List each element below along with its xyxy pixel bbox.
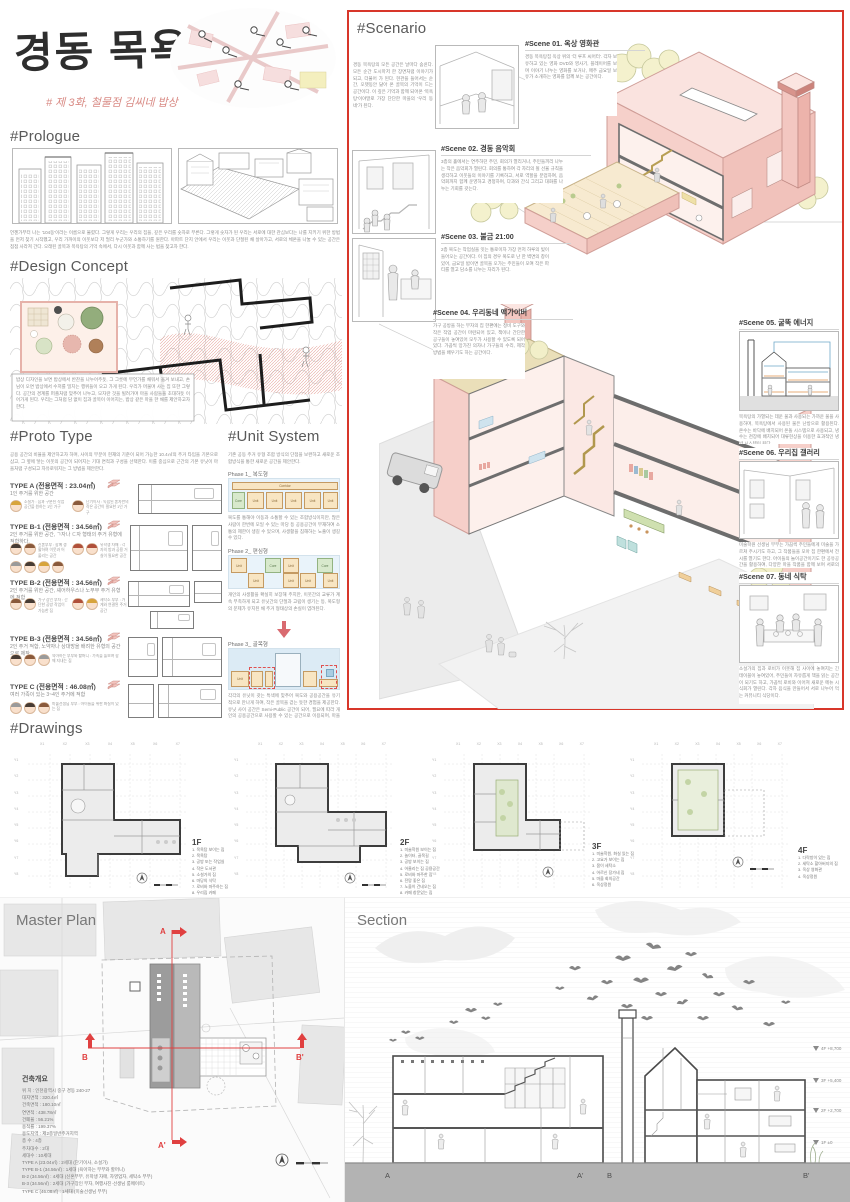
grid-label: Y1: [432, 758, 436, 762]
floor-plan-2f: X1X2X3X4X5X6X7 Y1Y2Y3Y4Y5Y6Y7Y8 2F 1. 미술…: [234, 742, 430, 900]
scene-04-text: 가구 공방을 하는 부자의 집 한편에는 정비 도구와 작은 작업 공간이 마련…: [433, 323, 525, 379]
phase3-text: 각각의 유닛이 갖는 특색에 맞추어 복도와 공용공간을 유기적으로 만나게 하…: [228, 693, 340, 719]
person-face-icon: [24, 543, 36, 555]
overview-line: 대지면적 : 320.4㎡: [22, 1094, 212, 1101]
chimney: [619, 1010, 636, 1163]
grid-label: X4: [716, 742, 720, 746]
svg-text:A: A: [385, 1171, 390, 1180]
scene-07-title: #Scene 07. 동네 식탁: [739, 572, 839, 584]
plan-svg: [242, 750, 397, 892]
unit-cell: Unit: [283, 558, 299, 573]
person-face-icon: [52, 561, 64, 573]
plan-svg: [440, 750, 595, 892]
grid-label: Y3: [14, 791, 18, 795]
overview-line: 층 수 : 4층: [22, 1137, 212, 1144]
person-face-icon: [10, 500, 22, 512]
ground-band: [345, 1163, 850, 1202]
laundry-machines: [617, 536, 637, 553]
floor-plan-1f: X1X2X3X4X5X6X7 Y1Y2Y3Y4Y5Y6Y7Y8 1F 1. 목욕…: [12, 742, 230, 900]
plan-label: 4F: [798, 846, 838, 855]
grid-label: Y7: [14, 856, 18, 860]
type-b1-person-2: 유학생 자매 : 각자의 방과 공용 거실이 필요한 공간: [72, 543, 128, 559]
person-face-icon: [38, 561, 50, 573]
person-face-icon: [38, 702, 50, 714]
grid-label: Y8: [14, 872, 18, 876]
overview-line: 건축면적 : 180.10㎡: [22, 1101, 212, 1108]
person-face-icon: [24, 598, 36, 610]
grid-label: X7: [176, 742, 180, 746]
scale-bar-icon: [750, 868, 774, 870]
svg-text:1F ±0: 1F ±0: [821, 1140, 833, 1145]
type-b1-person-1: 신혼부부 : 함께 생활하며 이웃과 어울리는 공간: [10, 543, 68, 559]
scene-07-text: 소설가의 집과 로비가 이웃해 집 사이에 놓여지는 긴 테이블이 놓여있어, …: [739, 666, 839, 704]
scene-05-text: 목욕탕의 가열되는 데운 물과 사용되는 가까운 물을 사용하며, 목욕탕에서 …: [739, 414, 839, 444]
type-b1-plan-2: [192, 525, 222, 571]
type-a-person-2: 단기이사 : 독립된 혼자만의 작은 공간이 필요한 1인 가구: [72, 500, 130, 516]
grid-label: X6: [559, 742, 563, 746]
section-b: [645, 1048, 823, 1163]
prologue-heading: #Prologue: [10, 128, 80, 145]
scenario-intro: 경동 목욕탕의 모든 공간은 날마다 숨쉰다. 모든 순간 도시마저 한 장면처…: [353, 62, 433, 148]
type-c-plan-2: [158, 684, 222, 718]
person-desc: 가구 장인 부자 : 간단한 공방 작업이 가능한 집: [38, 598, 68, 614]
plan-legend: 1. 목욕탕 보이는 집2. 목욕탕3. 공방 또는 작업실4. 작은 도서관5…: [192, 847, 228, 897]
building-overview: 건축개요 위 치 : 인천광역시 중구 경동 240-27대지면적 : 320.…: [22, 1074, 212, 1195]
grid-label: X7: [382, 742, 386, 746]
person-face-icon: [24, 654, 36, 666]
highlight-dashed-box: [249, 667, 275, 689]
grid-label: X3: [85, 742, 89, 746]
grid-label: Y8: [630, 872, 634, 876]
type-b2-person-1: 가구 장인 부자 : 간단한 공방 작업이 가능한 집: [10, 598, 68, 614]
bapsang-inset: [21, 302, 117, 372]
scenario-panel: #Scenario 경동 목욕탕의 모든 공간은 날마다 숨쉰다. 모든 순간 …: [347, 10, 844, 710]
grid-label: Y2: [630, 774, 634, 778]
type-b2-title: TYPE B-2 (전용면적 : 34.56㎡): [10, 577, 102, 587]
proto-type-intro: 공용 공간의 비율을 제안하고자 하며, 사이의 부분이 현재의 기준이 되어 …: [10, 452, 218, 476]
person-face-icon: [72, 543, 84, 555]
legend-item: 4. 옥상정원: [798, 874, 838, 880]
person-face-icon: [86, 543, 98, 555]
corridor-cell: Corridor: [232, 482, 338, 490]
grid-label: Y4: [630, 807, 634, 811]
phase1-diagram: Corridor Core Unit Unit Unit Unit Unit: [228, 478, 340, 512]
person-desc: 육아하는 부부와 할머니 : 가족을 돌보며 함께 지내는 집: [52, 654, 122, 665]
design-concept-text: 밥상 디자인을 보면 밥상에서 반찬을 나누어주듯, 그 그릇에 무언가를 채워…: [16, 377, 190, 418]
scene-04-title: #Scene 04. 우리동네 맥가이버: [433, 308, 573, 320]
scale-bar-icon: [362, 884, 386, 886]
svg-text:A': A': [577, 1171, 584, 1180]
stair-core: [564, 356, 614, 516]
unit-cell: Unit: [304, 492, 321, 509]
type-a-axon-icon: [106, 478, 122, 490]
type-b2-plan-3: [150, 611, 194, 629]
type-a-desc: 1인 주거를 위한 공간: [10, 491, 125, 498]
grid-y-labels: Y1Y2Y3Y4Y5Y6Y7Y8: [630, 758, 634, 876]
green-counter: [624, 509, 664, 533]
person-face-icon: [86, 598, 98, 610]
highlight-dashed-box: [321, 665, 337, 689]
site-map-illustration: [168, 6, 338, 110]
grid-label: X6: [153, 742, 157, 746]
type-c-axon-icon: [106, 679, 122, 691]
type-a-plan: [138, 484, 222, 514]
svg-text:4F +8,700: 4F +8,700: [821, 1046, 842, 1051]
type-b3-plan-2: [162, 637, 222, 677]
type-b2-axon-icon: [106, 575, 122, 587]
grid-label: X6: [361, 742, 365, 746]
unit-cell: Unit: [248, 573, 264, 588]
person-face-icon: [24, 702, 36, 714]
legend-item: 3. 공방 또는 작업실: [192, 859, 228, 865]
left-tree: [349, 1102, 377, 1163]
prologue-image-apartments: [12, 148, 172, 224]
scene-03-title: #Scene 03. 불금 21:00: [441, 232, 571, 244]
building-overview-title: 건축개요: [22, 1074, 212, 1084]
scene-01-title: #Scene 01. 옥상 영화관: [525, 39, 645, 51]
grid-x-labels: X1X2X3X4X5X6X7: [456, 742, 584, 746]
master-plan-panel: A A' B B' Master Plan 건축개요 위 치 : 인천광역시 중…: [0, 897, 345, 1202]
grid-y-labels: Y1Y2Y3Y4Y5Y6Y7Y8: [432, 758, 436, 876]
scene-01-illustration: [435, 45, 519, 129]
design-concept-heading: #Design Concept: [10, 258, 128, 275]
person-desc: 유학생 자매 : 각자의 방과 공용 거실이 필요한 공간: [100, 543, 128, 559]
unit-cell: Unit: [323, 492, 338, 509]
grid-label: Y3: [432, 791, 436, 795]
svg-text:B: B: [82, 1053, 88, 1062]
grid-label: X4: [320, 742, 324, 746]
grid-label: Y6: [234, 839, 238, 843]
grid-label: X2: [63, 742, 67, 746]
level-markers: 4F +8,700 3F +5,400 2F +2,700 1F ±0: [813, 1046, 842, 1145]
overview-line: 용도지역 : 제2종일반주거지역: [22, 1130, 212, 1137]
unit-cell: Unit: [323, 573, 338, 588]
grid-label: X3: [299, 742, 303, 746]
scene-01-text: 경동 목욕탕집 옥상 위의 '더 루프 씨어터'. 각자 보유하고 있는 영화 …: [525, 54, 617, 116]
floor-plan-3f: X1X2X3X4X5X6X7 Y1Y2Y3Y4Y5Y6Y7Y8 3F 1. 미술…: [432, 742, 628, 900]
grid-label: X2: [279, 742, 283, 746]
building-overview-lines: 위 치 : 인천광역시 중구 경동 240-27대지면적 : 320.4㎡건축면…: [22, 1087, 212, 1195]
unit-system-heading: #Unit System: [228, 428, 320, 445]
grid-label: Y2: [432, 774, 436, 778]
type-c-title: TYPE C (전용면적 : 46.08㎡): [10, 681, 96, 691]
svg-text:B: B: [607, 1171, 612, 1180]
phase3-diagram: Unit: [228, 648, 340, 690]
phase-arrow-icon: [277, 621, 291, 638]
scale-bar-icon: [296, 1162, 328, 1164]
scene-03-illustration: [352, 238, 436, 322]
grid-label: X3: [497, 742, 501, 746]
north-arrow-icon: [345, 873, 355, 883]
north-arrow-icon: [543, 867, 553, 877]
type-b2-plan-1: [128, 581, 190, 607]
plan-legend: 1. 미술학원, 화실 있는 집2. 고요가 보이는 집3. 몸이 세탁소4. …: [592, 851, 634, 888]
grid-label: Y4: [14, 807, 18, 811]
scene-02-text: 3층의 홀에서는 연주하던 주민, 회의가 열리거나, 주민들끼리 나누는 작은…: [441, 159, 563, 203]
drawings-heading: #Drawings: [10, 720, 83, 737]
phase1-text: 복도를 통해야 이동과 소통할 수 있는 조합방식이지만, 많은 사람이 한번에…: [228, 515, 340, 543]
plan-svg: [638, 750, 793, 892]
scene-06-illustration: [739, 461, 839, 539]
grid-label: Y4: [234, 807, 238, 811]
svg-text:A: A: [160, 927, 166, 936]
grid-label: X5: [736, 742, 740, 746]
plants: [811, 1143, 824, 1163]
grid-label: Y5: [432, 823, 436, 827]
north-arrow-icon: [276, 1154, 288, 1166]
grid-label: X7: [778, 742, 782, 746]
proto-type-heading: #Proto Type: [10, 428, 93, 445]
page-subtitle: # 제 3화, 철물점 김씨네 밥상: [46, 94, 178, 110]
overview-line: 건폐율 : 56.21%: [22, 1116, 212, 1123]
overview-line: TYPE C (46.08㎡) : 1세대 (미술선생님 부부): [22, 1188, 212, 1195]
section-svg: 4F +8,700 3F +5,400 2F +2,700 1F ±0 A A'…: [345, 898, 850, 1202]
grid-label: Y7: [234, 856, 238, 860]
unit-cell: Unit: [283, 573, 299, 588]
site-map-svg: [168, 6, 338, 110]
type-b1-title: TYPE B-1 (전용면적 : 34.56㎡): [10, 521, 102, 531]
design-concept-drawing: 밥상 디자인을 보면 밥상에서 반찬을 나누어주듯, 그 그릇에 무언가를 채워…: [10, 278, 342, 424]
overview-line: TYPE B-1 (34.56㎡) : 1세대 (육아하는 부부와 할머니): [22, 1166, 212, 1173]
scene-06-text: 미술학원 선생님 부부는 가끔씩 주민들에게 미술을 가르쳐 주시기도 하고, …: [739, 542, 839, 568]
section-panel: 4F +8,700 3F +5,400 2F +2,700 1F ±0 A A'…: [345, 897, 850, 1202]
grid-label: Y6: [630, 839, 634, 843]
grid-label: Y2: [14, 774, 18, 778]
plan-label: 3F: [592, 842, 634, 851]
plan-svg: [22, 750, 192, 892]
person-face-icon: [10, 598, 22, 610]
grid-label: Y6: [14, 839, 18, 843]
presentation-board: 경동 목욕탕 # 제 3화, 철물점 김씨네 밥상 #Prologue: [0, 0, 850, 1202]
grid-label: Y8: [234, 872, 238, 876]
prologue-text: 언젠가부터 나는 '104동'이라는 이름으로 불렸다. 그렇게 우리는 우리의…: [10, 230, 340, 258]
person-face-icon: [38, 654, 50, 666]
unit-cell: Unit: [247, 492, 264, 509]
grid-label: Y3: [234, 791, 238, 795]
grid-y-labels: Y1Y2Y3Y4Y5Y6Y7Y8: [234, 758, 238, 876]
grid-label: X1: [40, 742, 44, 746]
grid-label: X3: [695, 742, 699, 746]
scene-05-energy-diagram: [739, 331, 839, 411]
grid-label: Y4: [432, 807, 436, 811]
grid-x-labels: X1X2X3X4X5X6X7: [40, 742, 180, 746]
person-desc: 소설가 : 집과 구분된 작업 공간을 원하는 1인 가구: [24, 500, 68, 511]
scene-02-title: #Scene 02. 경동 음악회: [441, 144, 591, 156]
phase3-label: Phase 3_ 골목형: [228, 640, 268, 648]
grid-label: Y7: [630, 856, 634, 860]
grid-label: X1: [456, 742, 460, 746]
grid-label: X7: [580, 742, 584, 746]
scene-02-illustration: [352, 150, 436, 234]
person-face-icon: [72, 500, 84, 512]
svg-text:B': B': [803, 1171, 810, 1180]
grid-label: X1: [654, 742, 658, 746]
person-face-icon: [10, 543, 22, 555]
type-b2-plan-2: [194, 581, 222, 603]
unit-cell: Unit: [231, 671, 249, 687]
prologue-image-rooftops: [178, 148, 338, 224]
type-c-person-1: 미술선생님 부부 : 아이들을 위한 화실이 있는 집: [10, 702, 122, 714]
grid-label: Y5: [630, 823, 634, 827]
grid-label: Y1: [14, 758, 18, 762]
grid-label: X4: [518, 742, 522, 746]
svg-text:2F +2,700: 2F +2,700: [821, 1108, 842, 1113]
grid-label: X4: [108, 742, 112, 746]
legend-item: 8. 우리집 카페: [192, 890, 228, 896]
master-plan-heading: Master Plan: [16, 912, 96, 929]
person-face-icon: [24, 561, 36, 573]
type-c-plan-1: [128, 684, 154, 718]
person-desc: 세탁소 부부 : 가게와 연결된 주거 공간: [100, 598, 128, 614]
grid-label: Y1: [630, 758, 634, 762]
floor-plan-4f: X1X2X3X4X5X6X7 Y1Y2Y3Y4Y5Y6Y7Y8 4F 1. 다락…: [630, 742, 848, 900]
clouds: [375, 901, 845, 1058]
grid-label: Y1: [234, 758, 238, 762]
grid-label: Y5: [14, 823, 18, 827]
core-cell: Core: [232, 492, 245, 509]
unit-cell: Unit: [285, 492, 302, 509]
site-building: [130, 964, 200, 1088]
grid-label: X5: [538, 742, 542, 746]
grid-label: Y8: [432, 872, 436, 876]
overview-line: TYPE A (23.04㎡) : 2세대 (단기이사, 소설가): [22, 1159, 212, 1166]
chimney: [778, 73, 814, 188]
phase2-text: 개인의 사생활을 확실히 보장해 주지만, 이웃간의 교류가 계속 부족하게 되…: [228, 592, 340, 618]
type-b2-person-2: 세탁소 부부 : 가게와 연결된 주거 공간: [72, 598, 128, 614]
section-heading: Section: [357, 912, 407, 929]
type-c-desc: 여러 가족이 있는 3~4인 주거에 적합: [10, 692, 125, 699]
type-b1-plan-1: [130, 525, 188, 571]
type-b3-title: TYPE B-3 (전용면적 : 34.56㎡): [10, 633, 102, 643]
overview-line: 용적률 : 199.37%: [22, 1123, 212, 1130]
legend-item: 6. 옥상정원: [592, 882, 634, 888]
grid-label: X2: [477, 742, 481, 746]
grid-label: Y2: [234, 774, 238, 778]
unit-system-intro: 기존 공동 주거 유형 조합 방식의 단점을 보완하고 새로운 조합방식을 통한…: [228, 452, 340, 468]
grid-label: X2: [675, 742, 679, 746]
core-cell: Core: [317, 558, 333, 573]
person-face-icon: [10, 654, 22, 666]
core-cell: Core: [265, 558, 281, 573]
scenario-heading: #Scenario: [357, 20, 426, 37]
rooftops-sketch: [179, 149, 337, 223]
type-a-title: TYPE A (전용면적 : 23.04㎡): [10, 480, 95, 490]
grid-label: X5: [340, 742, 344, 746]
grid-x-labels: X1X2X3X4X5X6X7: [654, 742, 782, 746]
person-desc: 미술선생님 부부 : 아이들을 위한 화실이 있는 집: [52, 702, 122, 713]
overview-line: 연면적 : 438.78㎡: [22, 1109, 212, 1116]
overview-line: B-2 (34.56㎡) : 4세대 (신혼부부, 유학생 자매, 자영업자, …: [22, 1173, 212, 1180]
grid-label: Y3: [630, 791, 634, 795]
unit-cell: Unit: [300, 573, 316, 588]
void-cell: [275, 653, 301, 687]
type-b3-axon-icon: [106, 631, 122, 643]
type-b1-axon-icon: [106, 519, 122, 531]
overview-line: 위 치 : 인천광역시 중구 경동 240-27: [22, 1087, 212, 1094]
person-face-icon: [72, 598, 84, 610]
scene-03-text: 2층 복도는 작업실을 잇는 통로이자 가장 먼저 하루의 빛이 들어오는 공간…: [441, 247, 549, 295]
grid-y-labels: Y1Y2Y3Y4Y5Y6Y7Y8: [14, 758, 18, 876]
north-arrow-icon: [733, 857, 743, 867]
person-face-icon: [10, 561, 22, 573]
apartments-sketch: [13, 149, 171, 223]
person-desc: 단기이사 : 독립된 혼자만의 작은 공간이 필요한 1인 가구: [86, 500, 130, 516]
section-a: [393, 1056, 603, 1171]
unit-cell: [303, 671, 317, 687]
overview-line: B-3 (34.56㎡) : 2세대 (가구장인 부자, 여행사진·선생님 룸메…: [22, 1180, 212, 1187]
unit-cell: Unit: [266, 492, 283, 509]
grid-label: X6: [757, 742, 761, 746]
north-arrow-icon: [137, 873, 147, 883]
unit-cell: Unit: [231, 558, 247, 573]
person-desc: 신혼부부 : 함께 생활하며 이웃과 어울리는 공간: [38, 543, 68, 559]
person-face-icon: [10, 702, 22, 714]
overview-line: 세대수 : 10세대: [22, 1152, 212, 1159]
plan-label: 1F: [192, 838, 228, 847]
grid-label: X1: [258, 742, 262, 746]
scene-07-illustration: [739, 585, 839, 663]
phase1-label: Phase 1_ 복도형: [228, 470, 268, 478]
grid-label: X5: [130, 742, 134, 746]
svg-text:B': B': [296, 1053, 304, 1062]
overview-line: 주차대수 : 2대: [22, 1145, 212, 1152]
grid-label: Y6: [432, 839, 436, 843]
phase2-diagram: Unit Core Unit Core Unit Unit Unit Unit: [228, 555, 340, 589]
svg-text:3F +5,400: 3F +5,400: [821, 1078, 842, 1083]
scene-05-title: #Scene 05. 굴뚝 에너지: [739, 318, 839, 330]
scene-06-title: #Scene 06. 우리집 갤러리: [739, 448, 839, 460]
type-b3-plan-1: [128, 637, 158, 677]
plan-legend: 1. 다락방이 있는 집2. 세탁소 할아버지의 집3. 옥상 영화관4. 옥상…: [798, 855, 838, 880]
phase2-label: Phase 2_ 편심형: [228, 547, 268, 555]
grid-x-labels: X1X2X3X4X5X6X7: [258, 742, 386, 746]
type-a-person-1: 소설가 : 집과 구분된 작업 공간을 원하는 1인 가구: [10, 500, 68, 512]
grid-label: Y5: [234, 823, 238, 827]
grid-label: Y7: [432, 856, 436, 860]
scale-bar-icon: [154, 884, 178, 886]
type-b3-person-1: 육아하는 부부와 할머니 : 가족을 돌보며 함께 지내는 집: [10, 654, 122, 666]
